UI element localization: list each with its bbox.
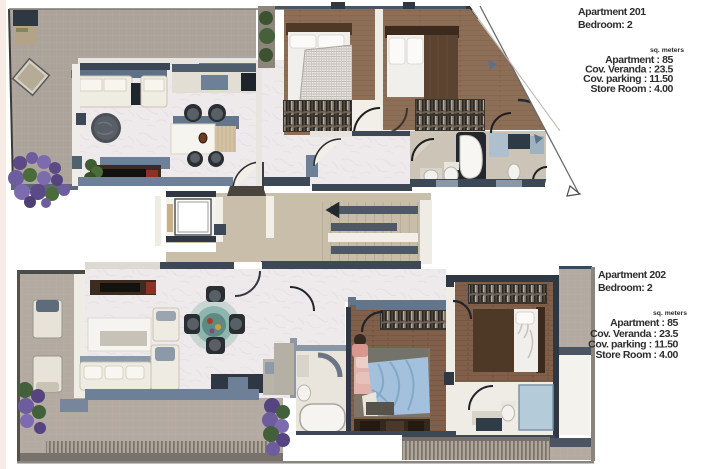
svg-text:Apartment 202: Apartment 202 [598,269,666,281]
svg-text:Bedroom: 2: Bedroom: 2 [578,19,633,31]
svg-text:sq. meters: sq. meters [653,310,687,317]
svg-text:Store Room : 4.00: Store Room : 4.00 [591,83,674,95]
svg-text:Bedroom: 2: Bedroom: 2 [598,282,653,294]
svg-text:sq. meters: sq. meters [650,47,684,54]
svg-text:Store Room : 4.00: Store Room : 4.00 [596,349,679,361]
svg-text:Apartment 201: Apartment 201 [578,6,646,18]
